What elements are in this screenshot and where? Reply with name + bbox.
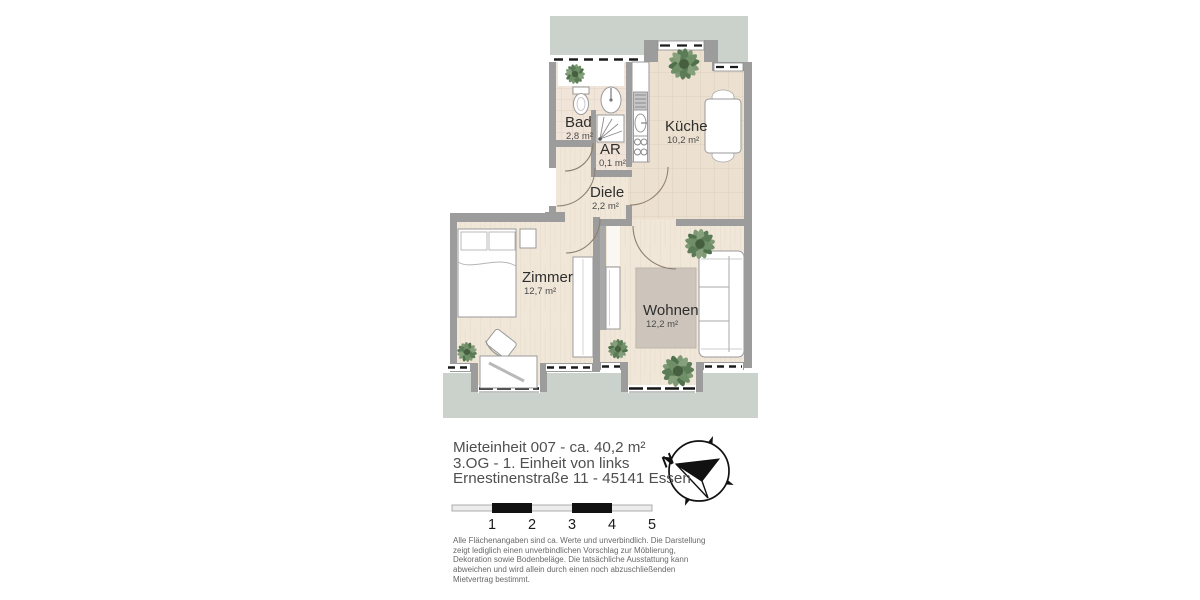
floor-plan-page: Bad 2,8 m² AR 0,1 m² Küche 10,2 m² Diele… — [0, 0, 1200, 600]
compass-tick — [725, 480, 734, 485]
dining-table — [705, 99, 741, 153]
unit-info: Mieteinheit 007 - ca. 40,2 m² 3.OG - 1. … — [453, 440, 691, 487]
room-label-bad: Bad — [565, 114, 592, 131]
room-area-zimmer: 12,7 m² — [524, 286, 556, 297]
room-label-kueche: Küche — [665, 118, 708, 135]
room-label-wohnen: Wohnen — [643, 302, 699, 319]
scale-bar: 1 2 3 4 5 — [452, 503, 656, 533]
scale-tick: 4 — [608, 517, 616, 533]
unit-title: Mieteinheit 007 - ca. 40,2 m² — [453, 440, 691, 456]
unit-address: Ernestinenstraße 11 - 45141 Essen — [453, 471, 691, 487]
scale-tick: 5 — [648, 517, 656, 533]
disclaimer-text: Alle Flächenangaben sind ca. Werte und u… — [453, 536, 713, 585]
toilet — [573, 87, 589, 94]
unit-floor: 3.OG - 1. Einheit von links — [453, 456, 691, 472]
scale-tick: 1 — [488, 517, 496, 533]
scale-tick: 3 — [568, 517, 576, 533]
room-label-zimmer: Zimmer — [522, 269, 573, 286]
niche — [607, 226, 620, 266]
compass-tick — [685, 497, 691, 506]
room-area-ar: 0,1 m² — [599, 158, 626, 169]
pillow — [461, 232, 487, 250]
room-label-ar: AR — [600, 141, 621, 158]
shelf — [606, 267, 620, 329]
room-area-diele: 2,2 m² — [592, 201, 619, 212]
floor-plan-drawing: Bad 2,8 m² AR 0,1 m² Küche 10,2 m² Diele… — [0, 0, 1200, 600]
sofa — [699, 251, 744, 357]
room-area-wohnen: 12,2 m² — [646, 319, 678, 330]
room-area-bad: 2,8 m² — [566, 131, 593, 142]
scale-tick: 2 — [528, 517, 536, 533]
room-area-kueche: 10,2 m² — [667, 135, 699, 146]
room-label-diele: Diele — [590, 184, 624, 201]
pillow — [489, 232, 515, 250]
nightstand — [520, 229, 536, 248]
